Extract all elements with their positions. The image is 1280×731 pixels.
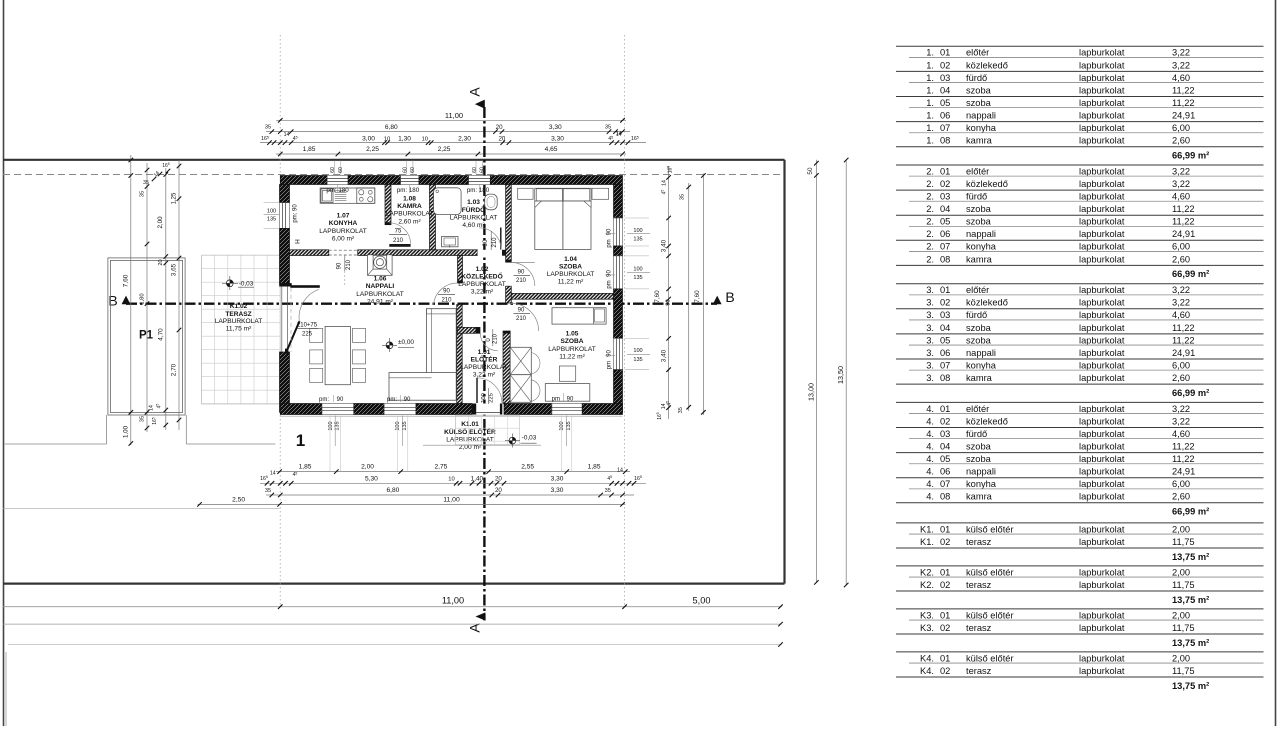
svg-text:02: 02 (940, 666, 950, 676)
svg-text:közlekedő: közlekedő (966, 298, 1008, 308)
svg-text:01: 01 (940, 166, 950, 176)
svg-text:210: 210 (393, 238, 404, 244)
svg-text:2,00: 2,00 (1172, 524, 1190, 534)
svg-text:2,00: 2,00 (1172, 653, 1190, 663)
svg-text:FÜRDŐ: FÜRDŐ (462, 205, 485, 214)
svg-text:lapburkolat: lapburkolat (1079, 310, 1125, 320)
svg-text:4.: 4. (926, 467, 934, 477)
svg-text:24,91: 24,91 (1172, 467, 1195, 477)
svg-text:11,22: 11,22 (1172, 204, 1195, 214)
svg-text:24,91: 24,91 (1172, 348, 1195, 358)
svg-text:35: 35 (678, 407, 684, 413)
svg-text:LAPBURKOLAT: LAPBURKOLAT (460, 364, 508, 371)
svg-text:05: 05 (940, 335, 950, 345)
svg-text:11,00: 11,00 (443, 497, 460, 504)
svg-text:LAPBURKOLAT: LAPBURKOLAT (215, 318, 263, 325)
svg-text:lapburkolat: lapburkolat (1079, 429, 1125, 439)
svg-text:6,80: 6,80 (385, 124, 398, 131)
svg-text:03: 03 (940, 73, 950, 83)
svg-text:lapburkolat: lapburkolat (1079, 204, 1125, 214)
svg-text:3,22 m²: 3,22 m² (473, 372, 496, 379)
svg-text:3.: 3. (926, 348, 934, 358)
svg-text:6,00: 6,00 (1172, 479, 1190, 489)
svg-text:lapburkolat: lapburkolat (1079, 217, 1125, 227)
svg-text:3.: 3. (926, 323, 934, 333)
svg-text:1.05: 1.05 (566, 331, 579, 338)
svg-text:lapburkolat: lapburkolat (1079, 73, 1125, 83)
svg-text:11,22: 11,22 (1172, 335, 1195, 345)
svg-text:02: 02 (940, 298, 950, 308)
svg-text:terasz: terasz (966, 580, 992, 590)
svg-text:-0,03: -0,03 (522, 435, 537, 442)
svg-text:11,22: 11,22 (1172, 85, 1195, 95)
svg-text:4,60: 4,60 (1172, 310, 1190, 320)
svg-text:fürdő: fürdő (966, 192, 987, 202)
svg-text:14: 14 (149, 405, 155, 411)
svg-text:lapburkolat: lapburkolat (1079, 123, 1125, 133)
svg-text:nappali: nappali (966, 110, 996, 120)
svg-text:66,99 m²: 66,99 m² (1172, 507, 1209, 517)
svg-text:66,99 m²: 66,99 m² (1172, 269, 1209, 279)
svg-text:lapburkolat: lapburkolat (1079, 492, 1125, 502)
svg-text:közlekedő: közlekedő (966, 60, 1008, 70)
svg-text:06: 06 (940, 229, 950, 239)
svg-text:01: 01 (940, 48, 950, 58)
svg-text:2,55: 2,55 (521, 464, 534, 471)
svg-text:5,00: 5,00 (693, 596, 711, 606)
svg-text:LAPBURKOLAT: LAPBURKOLAT (547, 271, 595, 278)
svg-text:lapburkolat: lapburkolat (1079, 136, 1125, 146)
svg-text:11,22: 11,22 (1172, 98, 1195, 108)
svg-text:K1.01: K1.01 (461, 421, 479, 428)
svg-text:24,91 m²: 24,91 m² (367, 298, 394, 305)
svg-text:6,00 m²: 6,00 m² (332, 235, 355, 242)
svg-text:K1.02: K1.02 (230, 303, 248, 310)
svg-text:lapburkolat: lapburkolat (1079, 537, 1125, 547)
svg-text:lapburkolat: lapburkolat (1079, 48, 1125, 58)
svg-text:lapburkolat: lapburkolat (1079, 623, 1125, 633)
svg-text:K2.: K2. (920, 580, 934, 590)
svg-text:lapburkolat: lapburkolat (1079, 60, 1125, 70)
svg-text:2,00: 2,00 (1172, 567, 1190, 577)
svg-text:210: 210 (516, 278, 527, 284)
svg-text:H: H (295, 239, 302, 244)
svg-text:szoba: szoba (966, 335, 992, 345)
svg-text:100: 100 (633, 228, 642, 234)
svg-text:közlekedő: közlekedő (966, 416, 1008, 426)
svg-text:24,91: 24,91 (1172, 229, 1195, 239)
svg-text:lapburkolat: lapburkolat (1079, 98, 1125, 108)
svg-text:135: 135 (633, 357, 642, 363)
svg-text:2.: 2. (926, 217, 934, 227)
svg-text:-0,03: -0,03 (239, 280, 254, 287)
svg-text:LAPBURKOLAT: LAPBURKOLAT (386, 211, 434, 218)
svg-text:90: 90 (518, 270, 525, 276)
svg-text:01: 01 (940, 524, 950, 534)
svg-text:lapburkolat: lapburkolat (1079, 567, 1125, 577)
svg-text:lapburkolat: lapburkolat (1079, 416, 1125, 426)
svg-text:5,30: 5,30 (365, 476, 378, 483)
svg-text:11,75 m²: 11,75 m² (226, 326, 252, 333)
svg-text:35: 35 (265, 125, 271, 131)
svg-text:6,00: 6,00 (1172, 360, 1190, 370)
svg-text:2.: 2. (926, 166, 934, 176)
svg-text:LAPBURKOLAT: LAPBURKOLAT (548, 346, 596, 353)
svg-text:6,80: 6,80 (386, 487, 399, 494)
svg-text:10: 10 (448, 477, 454, 483)
svg-text:35: 35 (680, 194, 686, 200)
svg-text:lapburkolat: lapburkolat (1079, 335, 1125, 345)
svg-text:4,65: 4,65 (545, 146, 558, 153)
svg-text:szoba: szoba (966, 204, 992, 214)
svg-text:210: 210 (346, 259, 352, 270)
svg-text:K4.: K4. (920, 666, 934, 676)
svg-text:szoba: szoba (966, 98, 992, 108)
svg-text:lapburkolat: lapburkolat (1079, 85, 1125, 95)
svg-text:lapburkolat: lapburkolat (1079, 467, 1125, 477)
svg-text:3,30: 3,30 (551, 135, 564, 142)
svg-text:02: 02 (940, 416, 950, 426)
svg-text:11,75: 11,75 (1172, 623, 1195, 633)
svg-text:2.: 2. (926, 242, 934, 252)
svg-text:02: 02 (940, 580, 950, 590)
svg-text:7,60: 7,60 (694, 290, 701, 303)
svg-text:nappali: nappali (966, 229, 996, 239)
svg-text:35: 35 (605, 125, 611, 131)
svg-text:11,22: 11,22 (1172, 323, 1195, 333)
svg-text:KÖZLEKEDŐ: KÖZLEKEDŐ (461, 271, 502, 280)
svg-text:1,85: 1,85 (303, 146, 316, 153)
svg-text:100: 100 (559, 421, 565, 430)
svg-text:pm:: pm: (319, 397, 329, 403)
svg-text:04: 04 (940, 85, 950, 95)
svg-text:210: 210 (492, 237, 498, 248)
svg-text:07: 07 (940, 479, 950, 489)
svg-text:2.: 2. (926, 254, 934, 264)
svg-text:3.: 3. (926, 285, 934, 295)
svg-text:LAPBURKOLAT: LAPBURKOLAT (450, 214, 498, 221)
svg-text:35: 35 (140, 416, 146, 422)
svg-text:2,30: 2,30 (458, 135, 471, 142)
svg-text:1.: 1. (926, 123, 934, 133)
svg-text:2,60 m²: 2,60 m² (398, 218, 421, 225)
svg-text:11,22: 11,22 (1172, 441, 1195, 451)
svg-text:fürdő: fürdő (966, 73, 987, 83)
svg-text:lapburkolat: lapburkolat (1079, 179, 1125, 189)
svg-text:100: 100 (328, 421, 334, 430)
svg-text:13,75 m²: 13,75 m² (1172, 595, 1209, 605)
svg-text:2,25: 2,25 (366, 146, 379, 153)
svg-text:1.: 1. (926, 85, 934, 95)
svg-text:terasz: terasz (966, 623, 992, 633)
svg-text:1,85: 1,85 (588, 464, 601, 471)
svg-text:3,22 m²: 3,22 m² (471, 289, 494, 296)
svg-text:kamra: kamra (966, 492, 993, 502)
svg-text:03: 03 (940, 192, 950, 202)
svg-text:35: 35 (143, 180, 149, 186)
svg-text:135: 135 (267, 217, 276, 223)
svg-text:2,00: 2,00 (361, 464, 374, 471)
svg-text:±0,00: ±0,00 (398, 339, 414, 346)
svg-text:pm: pm (552, 397, 560, 403)
svg-text:4.: 4. (926, 479, 934, 489)
svg-text:2,50: 2,50 (232, 497, 245, 504)
svg-text:4,60: 4,60 (1172, 73, 1190, 83)
svg-text:14: 14 (270, 470, 276, 476)
svg-text:05: 05 (940, 98, 950, 108)
svg-text:2.: 2. (926, 229, 934, 239)
svg-text:66,99 m²: 66,99 m² (1172, 388, 1209, 398)
svg-text:1.: 1. (926, 110, 934, 120)
svg-text:90: 90 (665, 299, 671, 305)
svg-text:2,60: 2,60 (1172, 136, 1190, 146)
svg-text:03: 03 (940, 310, 950, 320)
svg-text:90: 90 (518, 308, 525, 314)
svg-text:SZOBA: SZOBA (560, 338, 583, 345)
svg-text:4.: 4. (926, 404, 934, 414)
svg-text:lapburkolat: lapburkolat (1079, 454, 1125, 464)
svg-text:K3.: K3. (920, 623, 934, 633)
svg-text:210: 210 (441, 298, 452, 304)
svg-text:2,60: 2,60 (1172, 254, 1190, 264)
svg-text:külső előtér: külső előtér (966, 610, 1014, 620)
svg-text:20: 20 (496, 124, 503, 131)
svg-text:90: 90 (443, 289, 450, 295)
svg-text:3,22: 3,22 (1172, 404, 1190, 414)
svg-text:fürdő: fürdő (966, 310, 987, 320)
svg-text:lapburkolat: lapburkolat (1079, 479, 1125, 489)
svg-text:07: 07 (940, 123, 950, 133)
svg-text:pm: 90: pm: 90 (293, 204, 299, 223)
svg-text:P1: P1 (139, 330, 154, 342)
svg-text:14: 14 (661, 180, 667, 186)
svg-text:07: 07 (940, 360, 950, 370)
svg-text:K2.: K2. (920, 567, 934, 577)
svg-text:1.: 1. (926, 73, 934, 83)
svg-text:1,00: 1,00 (123, 425, 130, 438)
svg-text:11,75: 11,75 (1172, 537, 1195, 547)
svg-text:100: 100 (267, 209, 276, 215)
svg-text:10: 10 (384, 136, 390, 142)
svg-text:60: 60 (472, 167, 478, 173)
svg-text:11,75: 11,75 (1172, 666, 1195, 676)
svg-text:K1.: K1. (920, 537, 934, 547)
svg-text:2,25: 2,25 (438, 146, 451, 153)
svg-text:külső előtér: külső előtér (966, 524, 1014, 534)
svg-text:11,00: 11,00 (442, 596, 464, 606)
svg-text:3.: 3. (926, 298, 934, 308)
svg-text:3,22: 3,22 (1172, 48, 1190, 58)
svg-text:KAMRA: KAMRA (397, 203, 422, 210)
svg-text:1: 1 (296, 431, 305, 450)
svg-text:lapburkolat: lapburkolat (1079, 441, 1125, 451)
svg-text:1.: 1. (926, 48, 934, 58)
svg-text:08: 08 (940, 136, 950, 146)
svg-text:100: 100 (633, 267, 642, 273)
svg-text:lapburkolat: lapburkolat (1079, 404, 1125, 414)
svg-text:7,60: 7,60 (654, 290, 661, 303)
svg-text:6,00: 6,00 (1172, 242, 1190, 252)
svg-text:terasz: terasz (966, 537, 992, 547)
svg-text:1.03: 1.03 (467, 199, 480, 206)
svg-text:2,70: 2,70 (171, 363, 178, 376)
svg-text:3.: 3. (926, 335, 934, 345)
svg-text:1,85: 1,85 (299, 464, 312, 471)
svg-text:66,99 m²: 66,99 m² (1172, 151, 1209, 161)
svg-text:lapburkolat: lapburkolat (1079, 285, 1125, 295)
svg-text:11,75: 11,75 (1172, 580, 1195, 590)
svg-text:08: 08 (940, 373, 950, 383)
svg-text:4.: 4. (926, 441, 934, 451)
svg-text:06: 06 (940, 467, 950, 477)
svg-text:pm: 180: pm: 180 (397, 187, 420, 194)
svg-text:B: B (108, 293, 117, 309)
svg-text:90: 90 (483, 239, 489, 246)
svg-text:kamra: kamra (966, 254, 993, 264)
svg-text:60: 60 (410, 167, 416, 173)
svg-text:4.: 4. (926, 492, 934, 502)
svg-text:3,00: 3,00 (362, 135, 375, 142)
svg-text:11,22 m²: 11,22 m² (559, 353, 585, 360)
svg-text:90: 90 (607, 228, 613, 235)
svg-text:14: 14 (284, 132, 290, 138)
svg-text:konyha: konyha (966, 242, 997, 252)
svg-text:2,00: 2,00 (1172, 610, 1190, 620)
svg-text:03: 03 (940, 429, 950, 439)
svg-text:3,22: 3,22 (1172, 166, 1190, 176)
svg-text:07: 07 (940, 242, 950, 252)
svg-text:KONYHA: KONYHA (329, 220, 358, 227)
svg-text:2,60: 2,60 (1172, 373, 1190, 383)
svg-text:05: 05 (940, 454, 950, 464)
svg-text:lapburkolat: lapburkolat (1079, 580, 1125, 590)
svg-text:LAPBURKOLAT: LAPBURKOLAT (319, 228, 367, 235)
svg-text:01: 01 (940, 404, 950, 414)
svg-text:külső előtér: külső előtér (966, 653, 1014, 663)
svg-text:pm: pm (607, 280, 613, 288)
svg-text:lapburkolat: lapburkolat (1079, 348, 1125, 358)
svg-text:7,60: 7,60 (123, 274, 130, 287)
svg-text:4,60 m²: 4,60 m² (462, 222, 485, 229)
svg-text:90: 90 (337, 397, 344, 403)
svg-text:pm:: pm: (387, 397, 397, 403)
svg-text:ELŐTÉR: ELŐTÉR (471, 354, 498, 363)
svg-text:1.08: 1.08 (403, 195, 416, 202)
svg-text:225: 225 (302, 332, 313, 338)
svg-text:3,30: 3,30 (549, 124, 562, 131)
svg-text:lapburkolat: lapburkolat (1079, 254, 1125, 264)
svg-text:3,22: 3,22 (1172, 179, 1190, 189)
svg-text:11,00: 11,00 (445, 111, 463, 120)
svg-text:nappali: nappali (966, 348, 996, 358)
svg-text:02: 02 (940, 179, 950, 189)
svg-text:előtér: előtér (966, 48, 989, 58)
svg-text:SZOBA: SZOBA (559, 263, 582, 270)
svg-text:01: 01 (940, 653, 950, 663)
svg-text:90: 90 (404, 397, 411, 403)
svg-text:02: 02 (940, 537, 950, 547)
svg-text:06: 06 (940, 110, 950, 120)
svg-text:04: 04 (940, 323, 950, 333)
svg-text:konyha: konyha (966, 479, 997, 489)
svg-text:szoba: szoba (966, 441, 992, 451)
svg-text:135: 135 (566, 421, 572, 430)
svg-text:fürdő: fürdő (966, 429, 987, 439)
svg-text:pm: 180: pm: 180 (467, 187, 490, 194)
svg-text:135: 135 (633, 275, 642, 281)
svg-text:külső előtér: külső előtér (966, 567, 1014, 577)
svg-text:20: 20 (495, 476, 502, 483)
svg-text:kamra: kamra (966, 373, 993, 383)
svg-text:3,22: 3,22 (1172, 60, 1190, 70)
svg-text:60: 60 (402, 167, 408, 173)
svg-text:1.02: 1.02 (476, 266, 489, 273)
svg-text:24,91: 24,91 (1172, 110, 1195, 120)
svg-text:előtér: előtér (966, 404, 989, 414)
svg-text:lapburkolat: lapburkolat (1079, 110, 1125, 120)
svg-text:02: 02 (940, 623, 950, 633)
svg-text:210+75: 210+75 (297, 323, 318, 329)
svg-text:3,22: 3,22 (1172, 416, 1190, 426)
svg-text:konyha: konyha (966, 123, 997, 133)
svg-text:lapburkolat: lapburkolat (1079, 166, 1125, 176)
svg-text:szoba: szoba (966, 323, 992, 333)
svg-text:4.: 4. (926, 429, 934, 439)
svg-text:100: 100 (633, 348, 642, 354)
svg-text:nappali: nappali (966, 467, 996, 477)
svg-text:1.04: 1.04 (564, 256, 577, 263)
svg-text:4.: 4. (926, 454, 934, 464)
svg-text:1,40: 1,40 (471, 476, 484, 483)
svg-text:NAPPALI: NAPPALI (366, 283, 395, 290)
svg-text:06: 06 (940, 348, 950, 358)
svg-text:210: 210 (493, 333, 499, 344)
svg-text:1.: 1. (926, 98, 934, 108)
svg-text:szoba: szoba (966, 454, 992, 464)
svg-text:50: 50 (807, 167, 814, 175)
svg-text:14: 14 (617, 467, 623, 473)
svg-text:1.01: 1.01 (478, 349, 491, 356)
svg-text:13,75 m²: 13,75 m² (1172, 552, 1209, 562)
svg-text:terasz: terasz (966, 666, 992, 676)
svg-text:35: 35 (605, 488, 611, 494)
svg-text:35: 35 (140, 191, 146, 197)
svg-text:K4.: K4. (920, 653, 934, 663)
svg-text:1,30: 1,30 (398, 135, 411, 142)
svg-text:20: 20 (498, 135, 505, 142)
svg-text:75: 75 (395, 229, 402, 235)
svg-text:B: B (725, 289, 734, 305)
svg-text:lapburkolat: lapburkolat (1079, 524, 1125, 534)
svg-text:1.: 1. (926, 136, 934, 146)
svg-text:13,50: 13,50 (836, 366, 845, 384)
svg-text:1,25: 1,25 (172, 192, 178, 204)
svg-text:20: 20 (158, 259, 164, 265)
svg-text:3.: 3. (926, 373, 934, 383)
svg-text:lapburkolat: lapburkolat (1079, 192, 1125, 202)
svg-text:4,60: 4,60 (1172, 192, 1190, 202)
svg-text:3,30: 3,30 (551, 476, 564, 483)
svg-text:2,60: 2,60 (1172, 492, 1190, 502)
svg-text:11,22: 11,22 (1172, 217, 1195, 227)
svg-text:2,75: 2,75 (434, 464, 447, 471)
svg-text:K3.: K3. (920, 610, 934, 620)
svg-text:lapburkolat: lapburkolat (1079, 666, 1125, 676)
svg-text:lapburkolat: lapburkolat (1079, 360, 1125, 370)
svg-text:3,30: 3,30 (551, 487, 564, 494)
svg-text:pm: pm (607, 239, 613, 247)
svg-text:90: 90 (607, 270, 613, 277)
